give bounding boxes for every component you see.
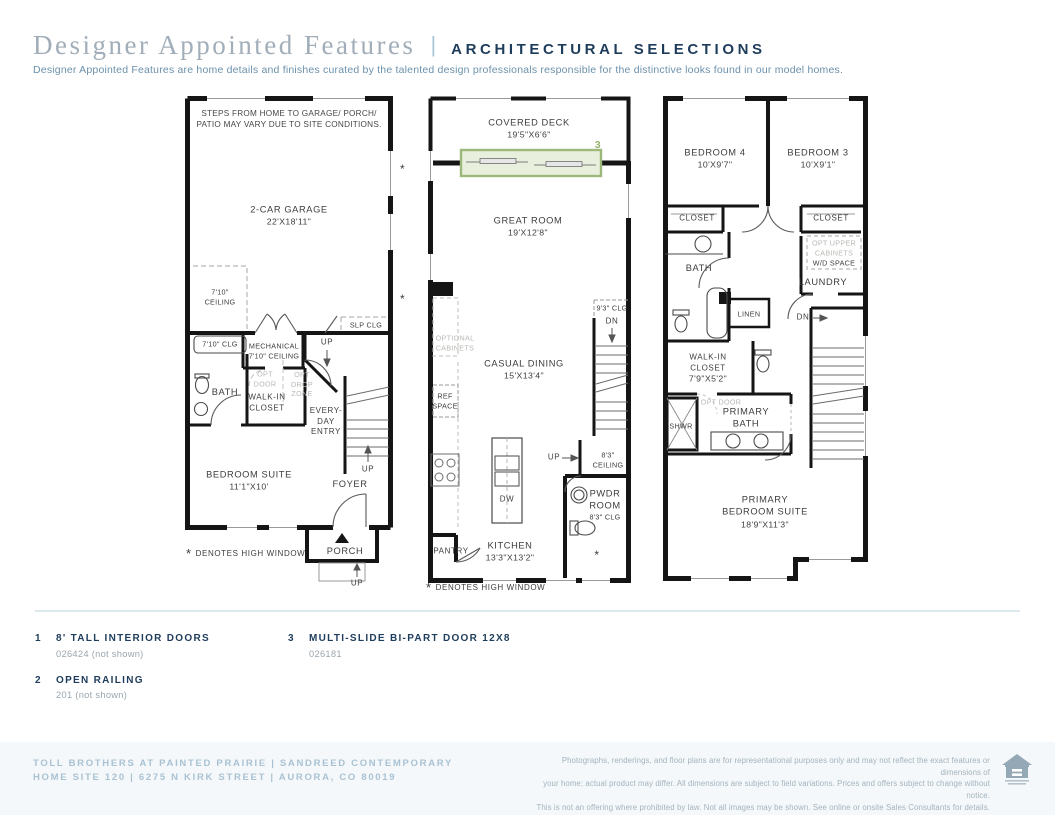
legend-2-detail: 201 (not shown) (56, 690, 127, 700)
foyer-label: FOYER (332, 478, 367, 490)
primary-suite-label: PRIMARYBEDROOM SUITE18'9"X11'3" (722, 493, 808, 530)
main-level-plan: COVERED DECK19'5"X6'6" 3 GREAT ROOM19'X1… (428, 96, 631, 583)
garage-label: 2-CAR GARAGE22'X18'11" (250, 204, 327, 229)
high-window-note-1: *DENOTES HIGH WINDOW (186, 546, 305, 561)
everyday-entry-label: EVERY-DAYENTRY (310, 406, 343, 438)
legend-1-detail: 026424 (not shown) (56, 649, 144, 659)
page-header: Designer Appointed Features | ARCHITECTU… (33, 30, 766, 61)
site-conditions-note: STEPS FROM HOME TO GARAGE/ PORCH/PATIO M… (196, 109, 381, 131)
equal-housing-icon (1001, 753, 1033, 787)
laundry-label: LAUNDRY (799, 276, 847, 288)
slp-clg-label: SLP CLG (350, 320, 382, 330)
up-stairs-label: UP (362, 465, 374, 476)
legend-divider (35, 610, 1020, 612)
title-divider: | (430, 32, 436, 58)
walkin-closet-label: WALK-INCLOSET (248, 392, 285, 413)
opt-upper-cabinets-label: OPT UPPERCABINETS (812, 239, 856, 258)
closet-right-label: CLOSET (813, 214, 849, 225)
legend-3-detail: 026181 (309, 649, 342, 659)
casual-dining-label: CASUAL DINING15'X13'4" (484, 358, 564, 383)
dn-label: DN (606, 317, 619, 328)
high-window-star-left-2: * (400, 292, 405, 306)
legend-3-num: 3 (288, 633, 295, 644)
linen-label: LINEN (738, 309, 761, 319)
feature-3-tag: 3 (595, 139, 601, 153)
covered-deck-label: COVERED DECK19'5"X6'6" (488, 117, 570, 142)
wd-space-label: W/D SPACE (813, 258, 856, 268)
powder-room-label: PWDRROOM (589, 488, 620, 513)
porch-label: PORCH (327, 545, 364, 557)
up-porch-label: UP (351, 579, 363, 590)
high-window-star-left-1: * (400, 162, 405, 176)
bedroom3-label: BEDROOM 310'X9'1" (787, 147, 848, 172)
walkin-closet-upper-label: WALK-INCLOSET7'9"X5'2" (689, 353, 727, 386)
legend-1-title: 8' TALL INTERIOR DOORS (56, 633, 210, 644)
up-entry-label: UP (321, 338, 333, 349)
first-floor-plan: STEPS FROM HOME TO GARAGE/ PORCH/PATIO M… (185, 96, 393, 590)
opt-drop-zone-label: OPTDROPZONE (291, 370, 313, 399)
legend-2-title: OPEN RAILING (56, 675, 144, 686)
high-window-note-2: *DENOTES HIGH WINDOW (426, 580, 545, 595)
upper-level-plan: BEDROOM 410'X9'7" BEDROOM 310'X9'1" CLOS… (663, 96, 868, 581)
shower-label: SHWR (669, 421, 692, 431)
ceiling-83-label: 8'3"CEILING (593, 451, 624, 470)
great-room-label: GREAT ROOM19'X12'8" (494, 215, 563, 240)
bath-label: BATH (212, 386, 239, 398)
opt-door-label: OPTDOOR (254, 370, 277, 389)
tagline: Designer Appointed Features are home det… (33, 64, 843, 76)
optional-cabinets-label: OPTIONALCABINETS (436, 334, 475, 353)
bath2-label: BATH (686, 262, 713, 274)
pantry-label: PANTRY (433, 547, 468, 558)
page-title: Designer Appointed Features (33, 30, 415, 61)
footer-address: HOME SITE 120 | 6275 N KIRK STREET | AUR… (33, 772, 396, 783)
ref-space-label: REFSPACE (432, 392, 457, 411)
footer-disclaimer: Photographs, renderings, and floor plans… (520, 755, 990, 813)
dn-upper-label: DN (797, 313, 810, 324)
legend-1-num: 1 (35, 633, 42, 644)
powder-clg-label: 8'3" CLG (589, 512, 620, 522)
primary-bath-label: PRIMARYBATH (723, 406, 769, 431)
mechanical-label: MECHANICAL7'10" CEILING (249, 342, 300, 361)
bedroom-suite-label: BEDROOM SUITE11'1"X10' (206, 469, 292, 494)
high-window-star: * (594, 548, 599, 564)
clg-93-label: 9'3" CLG (596, 303, 627, 313)
footer-community: TOLL BROTHERS AT PAINTED PRAIRIE | SANDR… (33, 758, 453, 769)
dw-label: DW (500, 495, 515, 506)
legend-3-title: MULTI-SLIDE BI-PART DOOR 12X8 (309, 633, 511, 644)
garage-ceiling-label: 7'10"CEILING (205, 288, 236, 307)
up-label: UP (548, 453, 560, 464)
bedroom4-label: BEDROOM 410'X9'7" (684, 147, 745, 172)
legend-2-num: 2 (35, 675, 42, 686)
kitchen-label: KITCHEN13'3"X13'2" (486, 540, 535, 565)
tub-clg-label: 7'10" CLG (202, 339, 237, 349)
page-subtitle: ARCHITECTURAL SELECTIONS (451, 41, 765, 58)
closet-left-label: CLOSET (679, 214, 715, 225)
